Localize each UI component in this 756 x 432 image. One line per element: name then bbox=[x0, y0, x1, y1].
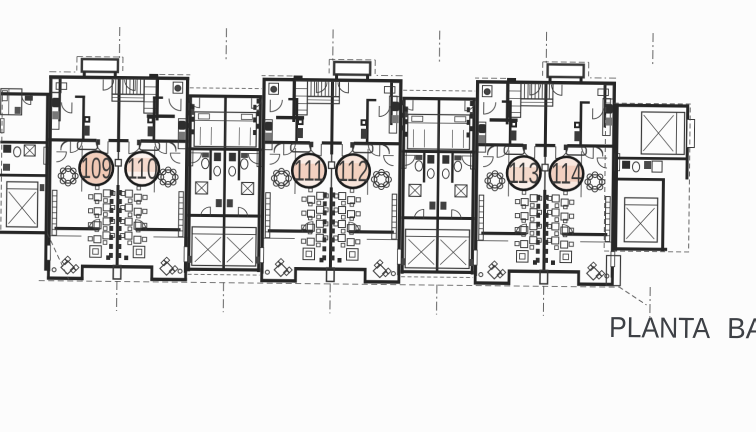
svg-text:110: 110 bbox=[127, 153, 158, 186]
svg-text:BAJA: BAJA bbox=[727, 313, 756, 346]
svg-text:113: 113 bbox=[508, 157, 539, 190]
svg-text:112: 112 bbox=[337, 155, 368, 188]
svg-text:PLANTA: PLANTA bbox=[609, 312, 711, 345]
svg-text:114: 114 bbox=[551, 158, 582, 191]
svg-text:109: 109 bbox=[81, 152, 112, 185]
svg-text:111: 111 bbox=[293, 155, 324, 188]
